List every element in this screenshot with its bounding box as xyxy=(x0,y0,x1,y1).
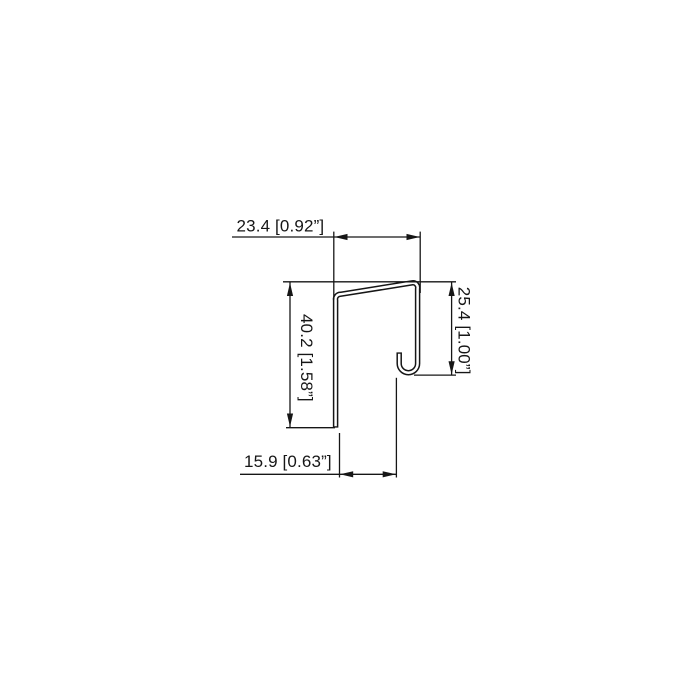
svg-text:23.4 [0.92”]: 23.4 [0.92”] xyxy=(237,217,325,236)
svg-text:15.9 [0.63”]: 15.9 [0.63”] xyxy=(244,452,332,471)
svg-text:40.2 [1.58”]: 40.2 [1.58”] xyxy=(297,314,316,402)
svg-text:25.4 [1.00”]: 25.4 [1.00”] xyxy=(455,287,474,375)
